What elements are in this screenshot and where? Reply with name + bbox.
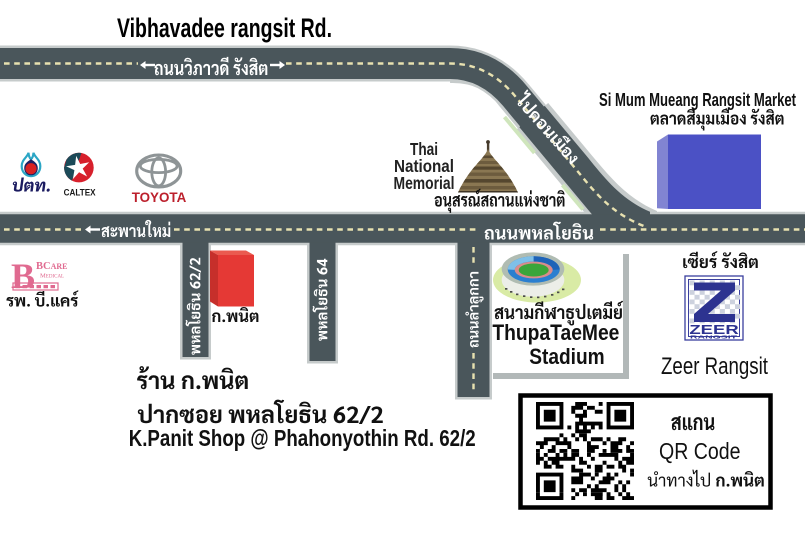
svg-text:MEDICAL: MEDICAL xyxy=(40,273,64,280)
svg-text:K.Panit Shop @ Phahonyothin Rd: K.Panit Shop @ Phahonyothin Rd. 62/2 xyxy=(129,425,476,451)
svg-text:Zeer Rangsit: Zeer Rangsit xyxy=(661,353,768,380)
svg-text:QR Code: QR Code xyxy=(659,438,741,464)
svg-text:Memorial: Memorial xyxy=(394,173,455,193)
svg-text:ThupaTaeMee: ThupaTaeMee xyxy=(492,320,619,345)
svg-text:Vibhavadee rangsit Rd.: Vibhavadee rangsit Rd. xyxy=(117,13,332,43)
svg-text:BCARE: BCARE xyxy=(36,261,67,272)
svg-text:Stadium: Stadium xyxy=(529,344,605,369)
svg-text:RANGSIT: RANGSIT xyxy=(690,335,738,340)
svg-text:Si Mum Mueang Rangsit Market: Si Mum Mueang Rangsit Market xyxy=(599,90,796,110)
svg-text:CALTEX: CALTEX xyxy=(64,188,97,199)
svg-text:TOYOTA: TOYOTA xyxy=(132,189,187,205)
